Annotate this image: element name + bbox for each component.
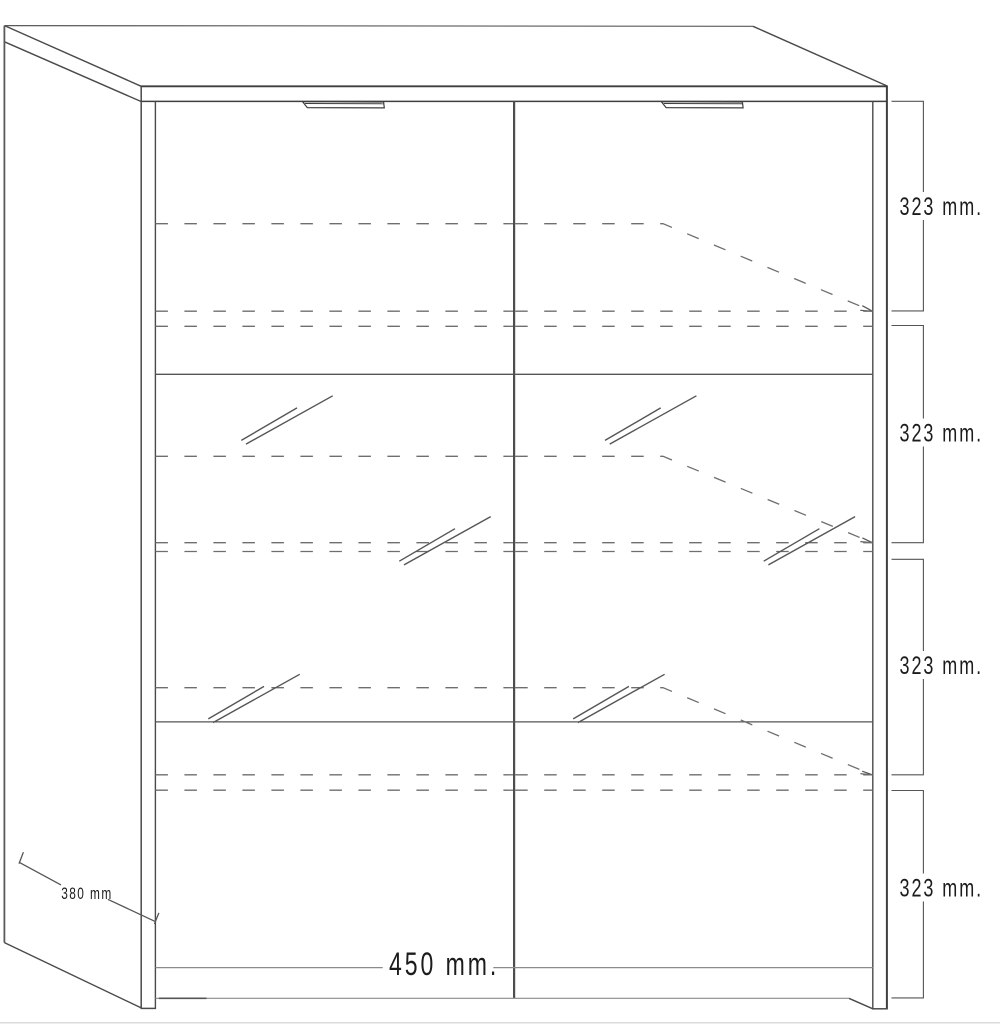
svg-text:450 mm.: 450 mm. [389, 946, 499, 982]
svg-text:323 mm.: 323 mm. [900, 874, 984, 903]
svg-text:380 mm: 380 mm [61, 885, 113, 903]
svg-text:323 mm.: 323 mm. [900, 419, 984, 448]
svg-text:323 mm.: 323 mm. [900, 192, 984, 221]
svg-text:323 mm.: 323 mm. [900, 651, 984, 680]
